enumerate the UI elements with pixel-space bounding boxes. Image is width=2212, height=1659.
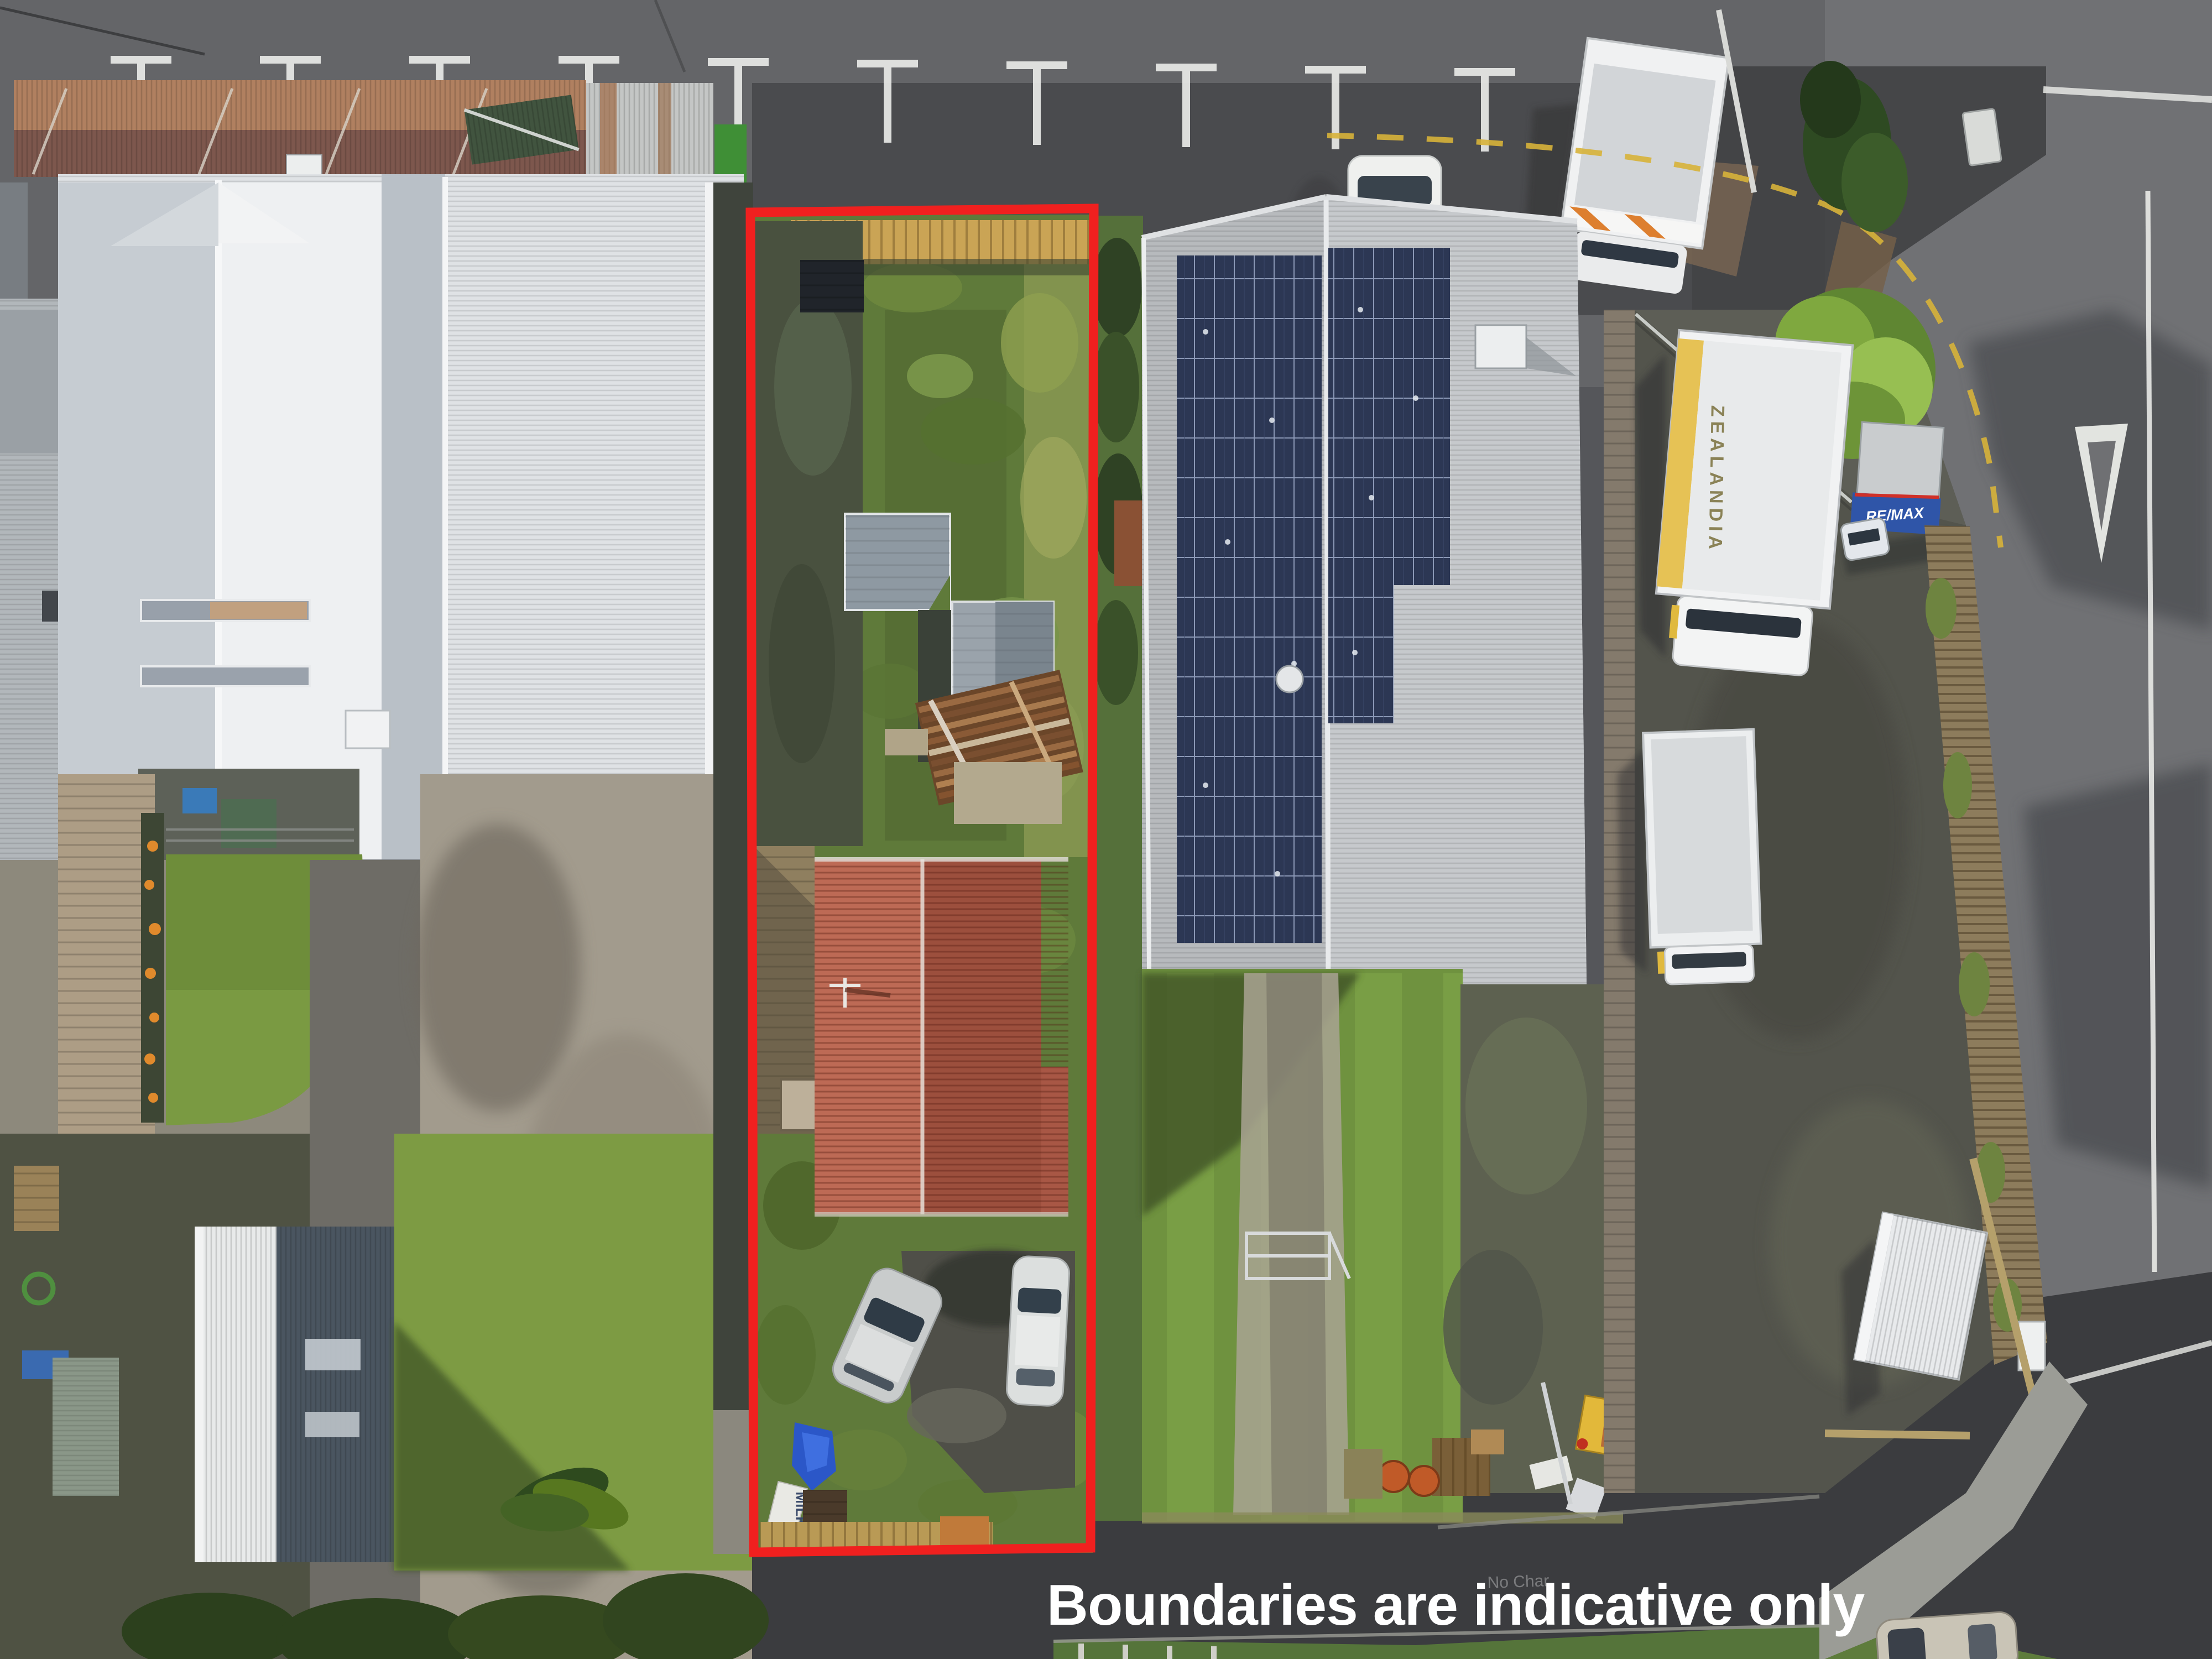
gray-shed-1-texture — [845, 514, 950, 610]
white-roof-east-slope — [218, 182, 382, 860]
small-pad — [885, 729, 928, 755]
solar-building — [1142, 197, 1587, 1026]
subject-property: MILK — [752, 215, 1098, 1553]
flower-bed — [141, 813, 164, 1123]
shed-ridge-cap — [195, 1227, 204, 1562]
solar-array-east — [1328, 248, 1450, 585]
shed-roof-light-texture — [202, 1227, 276, 1562]
alley-concrete — [713, 1410, 753, 1554]
moss-patch-b — [1443, 1250, 1543, 1405]
black-pallet-texture — [800, 260, 864, 312]
roof-vent-box — [1475, 325, 1526, 368]
skylight-amber — [210, 602, 307, 619]
wet-patch-1 — [415, 824, 581, 1112]
white-roof2-shaded — [382, 174, 445, 860]
shed-skylight-1 — [305, 1339, 361, 1370]
aerial-scene: MILK — [0, 0, 2212, 1659]
orange-barrel-2 — [1409, 1466, 1439, 1496]
car-white — [1006, 1256, 1070, 1407]
truck-box-roof — [1574, 64, 1716, 222]
concrete-pad — [954, 762, 1062, 824]
solar-array-west — [1177, 255, 1322, 943]
lawn-driveway-shadow — [1266, 973, 1327, 1515]
zealandia-logo-text: ZEALANDIA — [1704, 405, 1728, 554]
moss-blotch-1 — [774, 299, 852, 476]
subject-house — [815, 857, 1068, 1217]
rust-streak-2 — [658, 83, 671, 185]
house-corrugation — [815, 859, 1068, 1214]
gravel-light — [907, 1388, 1006, 1443]
house-gutter-top — [815, 857, 1068, 862]
house-gutter-bottom — [815, 1212, 1068, 1217]
aerial-photo-canvas: MILK — [0, 0, 2212, 1659]
old-boards — [1344, 1449, 1383, 1499]
side-shed — [1114, 500, 1142, 586]
truck-white-2 — [1618, 729, 1762, 985]
round-vent — [1276, 666, 1303, 692]
rear-gate — [940, 1516, 989, 1546]
solar-property — [1092, 197, 1641, 1524]
green-garage-texture — [53, 1358, 119, 1496]
solar-ridge — [1326, 197, 1328, 995]
cardboard-box — [1471, 1430, 1504, 1454]
boundary-disclaimer-caption: Boundaries are indicative only — [1047, 1573, 1865, 1637]
deck-table — [781, 1079, 817, 1130]
white-roof-west-slope — [58, 182, 218, 860]
solar-array-east-lower — [1328, 585, 1394, 723]
farleft-roof-dark — [0, 310, 58, 453]
rust-streak-1 — [600, 83, 617, 185]
orange-barrel-1 — [1378, 1461, 1409, 1492]
wood-pile-texture — [14, 1166, 59, 1231]
shed-skylight-2 — [305, 1412, 359, 1437]
rooftop-unit — [346, 711, 390, 748]
brick-terrace-texture — [58, 774, 155, 1139]
truck2-shadow — [1618, 747, 1647, 973]
left-building-complex — [0, 80, 769, 1659]
zealandia-shadow — [1636, 354, 1666, 658]
shed-roof-dark-texture — [276, 1227, 394, 1562]
moss-blotch-2 — [769, 564, 835, 763]
moss-patch-a — [1465, 1018, 1587, 1194]
road-sign-back-2 — [1963, 108, 2002, 165]
blue-tank — [182, 788, 217, 813]
skylight-band-2 — [141, 666, 310, 686]
farleft-wall — [0, 182, 28, 304]
